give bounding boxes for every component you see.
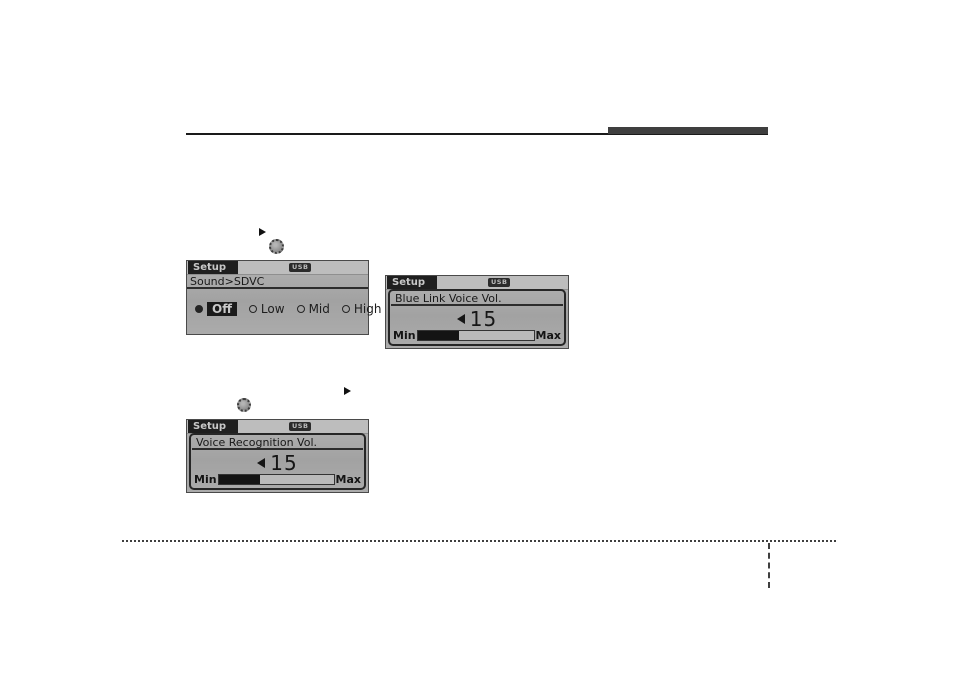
tune-knob-icon: [269, 239, 284, 254]
min-label: Min: [194, 473, 217, 486]
volume-value: 15: [270, 453, 297, 473]
usb-badge: USB: [289, 422, 311, 431]
max-label: Max: [536, 329, 561, 342]
radio-option-high: High: [342, 302, 382, 316]
footer-vertical-dashed-rule: [768, 543, 770, 588]
speaker-icon: [257, 458, 265, 468]
radio-option-label: Low: [261, 302, 285, 316]
radio-option-label: High: [354, 302, 382, 316]
tab-setup: Setup: [188, 420, 238, 433]
volume-title: Blue Link Voice Vol.: [391, 291, 563, 306]
volume-title: Voice Recognition Vol.: [192, 435, 363, 450]
sdvc-options: Off Low Mid High: [195, 302, 366, 316]
volume-value-row: 15: [191, 451, 364, 474]
screenshot-bluelink-volume: Setup USB Blue Link Voice Vol. 15 Min Ma…: [385, 275, 569, 349]
volume-panel: Blue Link Voice Vol. 15 Min Max: [388, 289, 566, 346]
speaker-icon: [457, 314, 465, 324]
radio-option-label: Off: [207, 302, 237, 316]
volume-slider-row: Min Max: [393, 328, 561, 342]
max-label: Max: [336, 473, 361, 486]
volume-panel: Voice Recognition Vol. 15 Min Max: [189, 433, 366, 490]
radio-option-label: Mid: [309, 302, 330, 316]
volume-slider-fill: [219, 475, 260, 484]
breadcrumb: Sound>SDVC: [187, 275, 368, 289]
radio-icon: [342, 305, 350, 313]
screenshot-voice-recognition-volume: Setup USB Voice Recognition Vol. 15 Min …: [186, 419, 369, 493]
arrow-right-icon: [344, 387, 351, 395]
arrow-right-icon: [259, 228, 266, 236]
screen-top-strip: Setup USB: [386, 276, 568, 290]
volume-value-row: 15: [390, 307, 564, 330]
volume-value: 15: [470, 309, 497, 329]
volume-slider-track: [218, 474, 335, 485]
min-label: Min: [393, 329, 416, 342]
manual-page: Setup USB Sound>SDVC Off Low Mid High: [0, 0, 954, 674]
header-accent-bar: [608, 127, 768, 134]
volume-slider-row: Min Max: [194, 472, 361, 486]
screen-top-strip: Setup USB: [187, 420, 368, 434]
radio-option-mid: Mid: [297, 302, 330, 316]
footer-dotted-rule: [122, 540, 836, 542]
tab-setup: Setup: [188, 261, 238, 274]
volume-slider-fill: [418, 331, 460, 340]
usb-badge: USB: [488, 278, 510, 287]
volume-slider-track: [417, 330, 535, 341]
tune-knob-icon: [237, 398, 251, 412]
usb-badge: USB: [289, 263, 311, 272]
radio-selected-icon: [195, 305, 203, 313]
radio-option-off: Off: [195, 302, 237, 316]
radio-icon: [297, 305, 305, 313]
tab-setup: Setup: [387, 276, 437, 289]
radio-option-low: Low: [249, 302, 285, 316]
screen-top-strip: Setup USB: [187, 261, 368, 275]
radio-icon: [249, 305, 257, 313]
screenshot-sdvc: Setup USB Sound>SDVC Off Low Mid High: [186, 260, 369, 335]
